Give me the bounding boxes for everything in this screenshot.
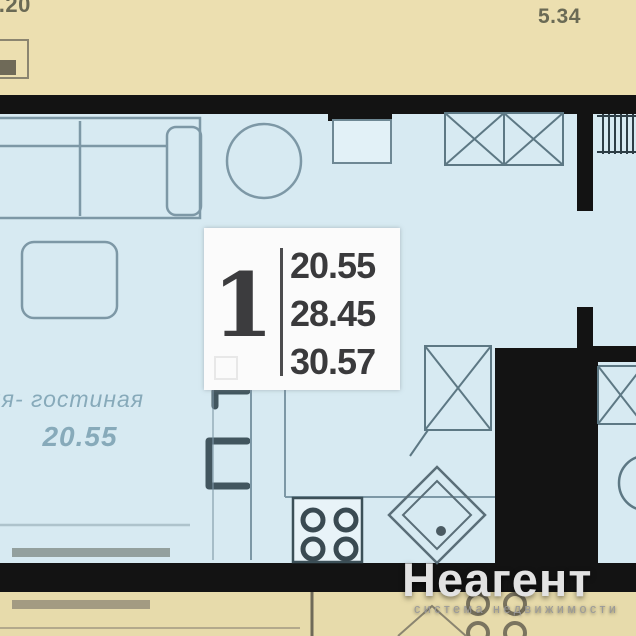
stove-icon [293, 498, 362, 562]
wardrobe-icon [445, 113, 563, 165]
neighbor-basin-icon [619, 456, 636, 510]
dimension-label-top-right: 5.34 [538, 5, 581, 29]
watermark-logo: Неагент [402, 552, 592, 607]
fridge-icon [410, 346, 491, 456]
room-name-label: ня- гостиная [0, 386, 203, 413]
sofa-icon [0, 118, 201, 218]
window-sill-lines [0, 525, 190, 557]
hatched-shaft-icon [597, 114, 636, 154]
info-box-corner-mark [214, 356, 238, 380]
info-box-divider [280, 248, 283, 376]
area-value-living: 20.55 [290, 242, 396, 290]
upper-exterior-structure [0, 40, 28, 78]
bar-stools-icon [209, 391, 247, 486]
room-area-label: 20.55 [30, 421, 130, 453]
dimension-label-top-left: 0.20 [0, 0, 31, 18]
coffee-table-icon [22, 242, 117, 318]
area-value-total: 30.57 [290, 338, 396, 386]
watermark-tagline: система недвижимости [414, 602, 619, 616]
apartment-info-box: 1 20.55 28.45 30.57 [204, 228, 400, 390]
vent-duct-icon [333, 120, 391, 163]
area-values: 20.55 28.45 30.57 [290, 242, 396, 386]
round-table-icon [227, 124, 301, 198]
neighbor-wardrobe-icon [598, 366, 636, 424]
floor-plan-image: 0.20 5.34 1 20.55 28.45 30.57 ня- гостин… [0, 0, 636, 636]
sink-icon [389, 467, 485, 563]
area-value-apartment: 28.45 [290, 290, 396, 338]
